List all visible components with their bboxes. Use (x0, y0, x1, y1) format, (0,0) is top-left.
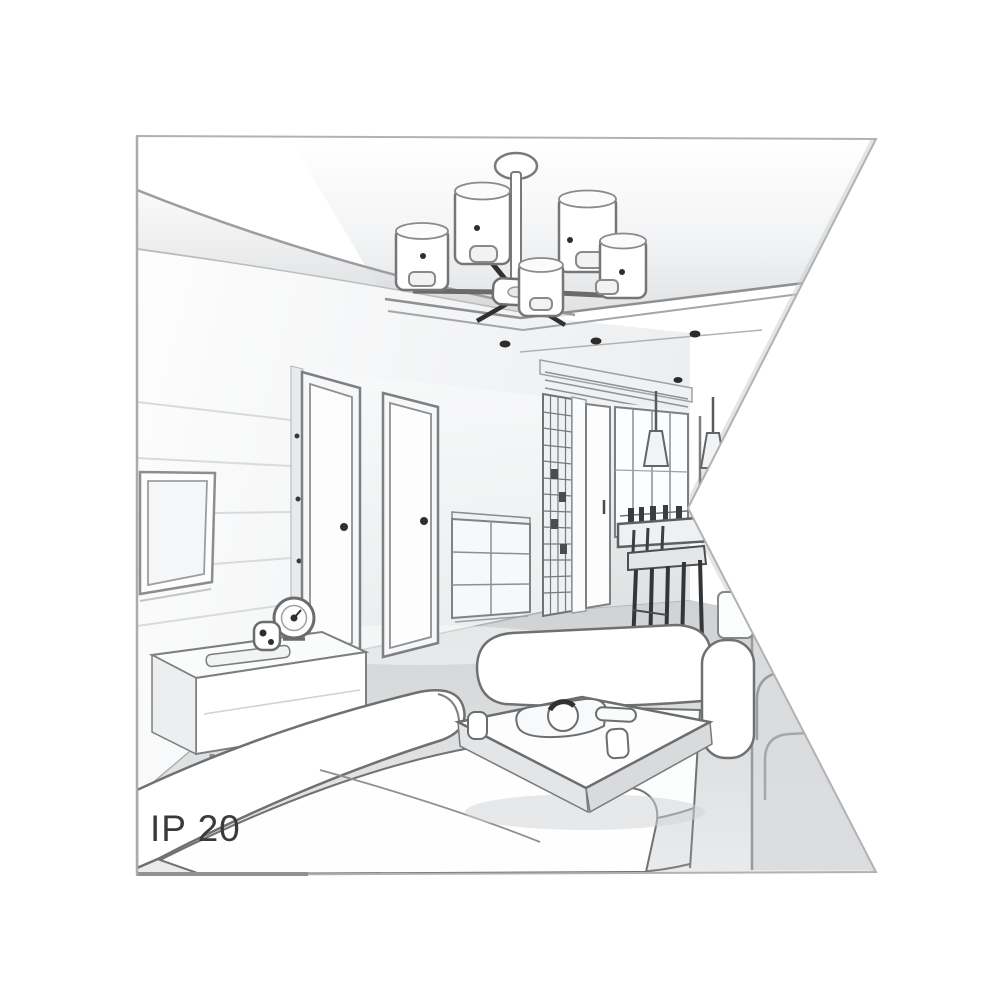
coffee-table (458, 697, 712, 830)
chandelier-shade (519, 258, 563, 316)
glass-partition (543, 394, 572, 616)
shade-slot (596, 280, 618, 294)
scene: IP 20 (137, 136, 876, 875)
door-handle (420, 517, 428, 525)
shade-slot (530, 298, 552, 310)
hall-door-leaf (586, 404, 610, 608)
spotlight-dot (591, 338, 602, 345)
shade-rim (600, 234, 646, 249)
door-leaf (390, 403, 431, 648)
spotlight-dot (500, 341, 511, 348)
cup (606, 728, 629, 758)
cup (468, 712, 487, 739)
shade-dot (567, 237, 573, 243)
shade-rim (559, 191, 616, 208)
ip-rating-label: IP 20 (150, 808, 241, 849)
hallway-door (586, 404, 610, 608)
chandelier-shade (455, 183, 510, 265)
shade-slot (409, 272, 435, 286)
chandelier-shade (396, 223, 448, 290)
spotlight-dot (690, 331, 701, 338)
shade-rim (396, 223, 448, 239)
door-handle (340, 523, 348, 531)
speaker-dot (268, 639, 274, 645)
hall-pillar (572, 397, 586, 613)
shade-dot (474, 225, 480, 231)
shade-slot (470, 246, 497, 262)
shelf-item (551, 519, 558, 529)
shade-rim (455, 183, 510, 200)
plate (596, 707, 637, 722)
mini-speaker (254, 622, 280, 650)
shelf-item (551, 469, 558, 479)
strip-dot (295, 434, 300, 439)
tv-screen (148, 481, 207, 585)
shelf-item (559, 492, 566, 502)
wall-mounted-tv (140, 472, 215, 601)
shade-dot (619, 269, 625, 275)
shade-dot (420, 253, 426, 259)
shade-rim (519, 258, 563, 272)
chest-of-drawers (452, 512, 530, 622)
illustration-canvas: IP 20 (0, 0, 1000, 1000)
spotlight-dot (674, 377, 683, 383)
shelf-item (560, 544, 567, 554)
sofa-back-cushion (477, 625, 714, 706)
strip-dot (296, 497, 301, 502)
speaker-dot (260, 630, 267, 637)
chandelier-shade (596, 234, 646, 299)
door-leaf (310, 384, 352, 658)
interior-door-right (383, 393, 438, 657)
interior-line-drawing: IP 20 (0, 0, 1000, 1000)
speaker-body (254, 622, 280, 650)
